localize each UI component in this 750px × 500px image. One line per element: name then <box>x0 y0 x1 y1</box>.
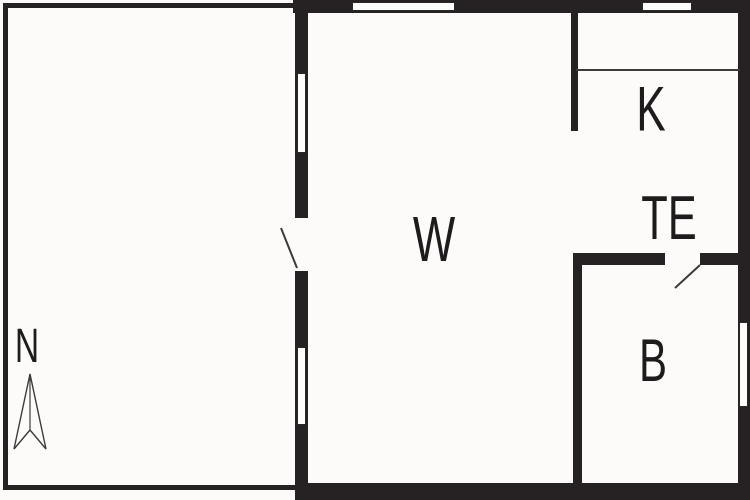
room-label-entrance: TE <box>641 188 696 250</box>
window-left-lower <box>297 347 306 425</box>
room-label-living: W <box>413 207 455 271</box>
door-opening-terrace <box>295 218 308 271</box>
wall-bottom <box>295 483 750 500</box>
compass-north-label: N <box>15 323 39 371</box>
window-right-bedroom <box>739 322 748 407</box>
floor-plan: W K TE B N <box>0 0 750 500</box>
room-terrace <box>8 8 295 483</box>
wall-bedroom-top-left-segment <box>573 253 665 265</box>
window-top-living <box>352 2 455 11</box>
room-label-bedroom: B <box>639 331 667 391</box>
window-left-upper <box>297 73 306 153</box>
wall-bedroom-left <box>573 253 582 483</box>
wall-living-kitchen <box>571 13 578 131</box>
window-top-kitchen <box>642 2 692 11</box>
wall-right <box>738 0 750 500</box>
wall-bedroom-top-right-segment <box>700 253 740 265</box>
room-label-kitchen: K <box>636 79 665 142</box>
